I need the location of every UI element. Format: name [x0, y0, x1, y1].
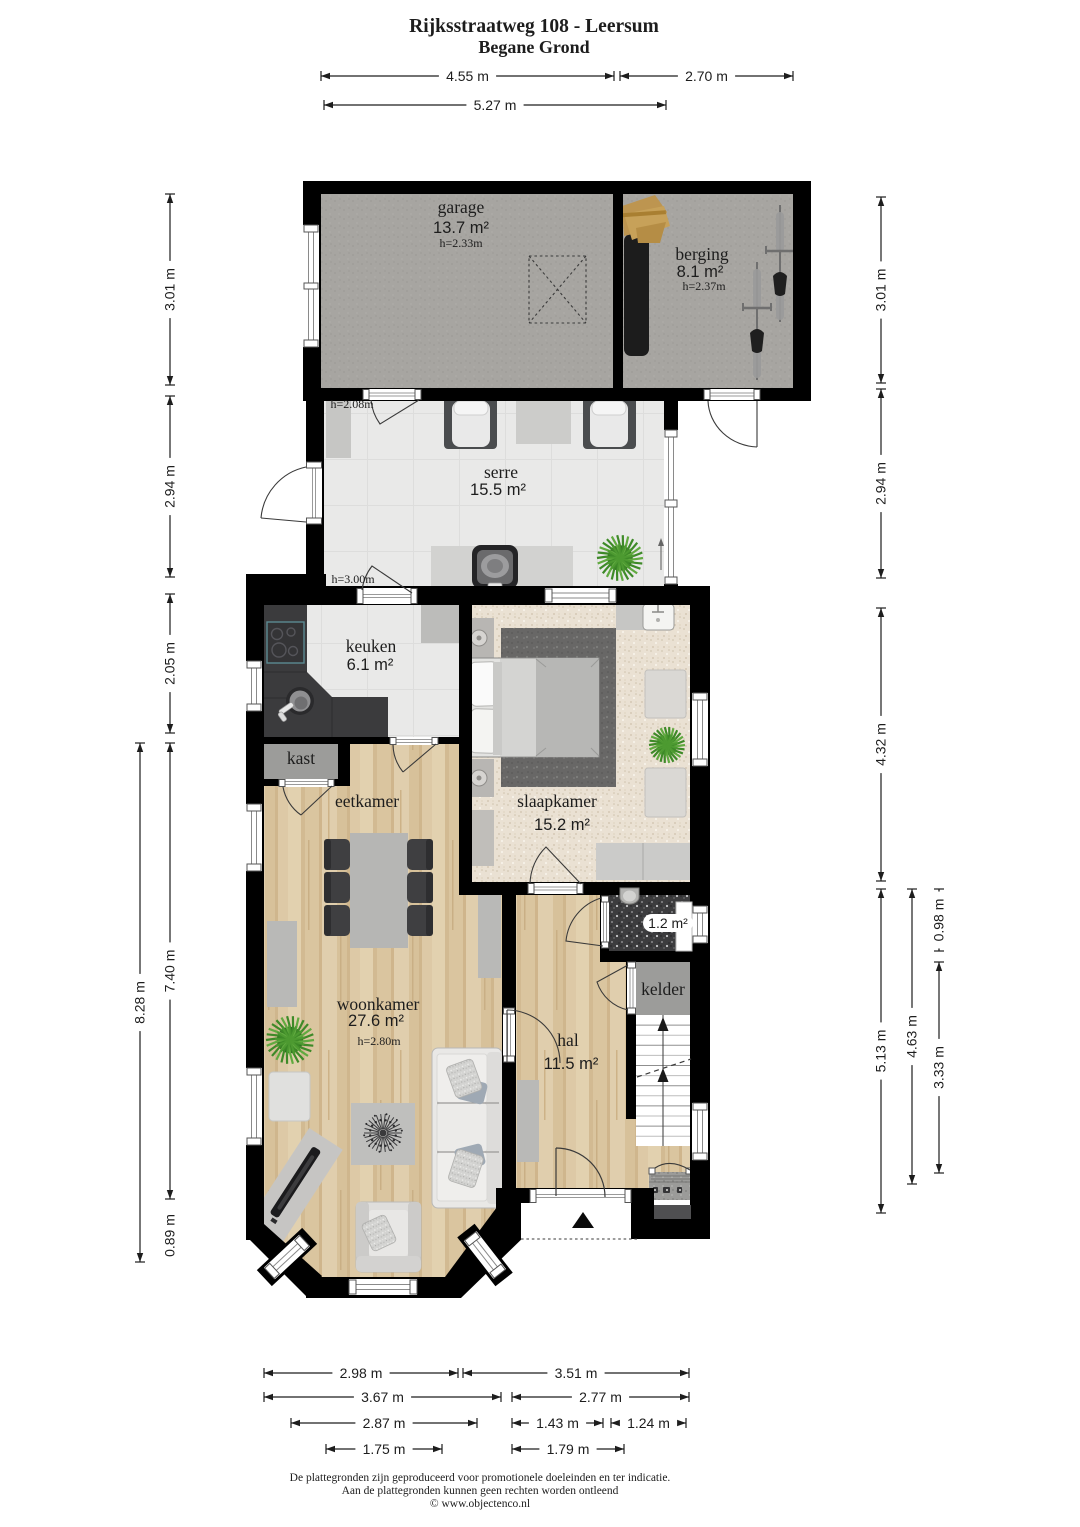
svg-text:Begane Grond: Begane Grond — [478, 37, 589, 57]
svg-text:11.5 m²: 11.5 m² — [544, 1055, 599, 1073]
svg-text:2.05 m: 2.05 m — [162, 642, 178, 685]
svg-text:13.7 m²: 13.7 m² — [433, 219, 489, 237]
svg-text:h=2.80m: h=2.80m — [357, 1034, 401, 1048]
svg-text:5.13 m: 5.13 m — [873, 1030, 889, 1073]
svg-text:2.94 m: 2.94 m — [873, 462, 889, 505]
svg-text:serre: serre — [484, 462, 518, 482]
svg-text:1.43 m: 1.43 m — [536, 1415, 579, 1431]
svg-text:Rijksstraatweg 108 - Leersum: Rijksstraatweg 108 - Leersum — [409, 16, 659, 37]
svg-text:h=2.37m: h=2.37m — [682, 279, 726, 293]
svg-text:eetkamer: eetkamer — [335, 791, 399, 811]
svg-text:15.5 m²: 15.5 m² — [470, 481, 526, 499]
svg-text:© www.objectenco.nl: © www.objectenco.nl — [430, 1498, 530, 1510]
svg-text:keuken: keuken — [346, 636, 397, 656]
svg-text:slaapkamer: slaapkamer — [517, 791, 597, 811]
svg-text:4.32 m: 4.32 m — [873, 723, 889, 766]
svg-text:kelder: kelder — [641, 979, 685, 999]
svg-text:3.33 m: 3.33 m — [931, 1046, 947, 1089]
svg-text:7.40 m: 7.40 m — [162, 950, 178, 993]
svg-text:h=2.08m: h=2.08m — [330, 397, 374, 411]
svg-text:0.89 m: 0.89 m — [162, 1214, 178, 1257]
svg-text:0.98 m: 0.98 m — [931, 899, 947, 942]
svg-text:h=3.00m: h=3.00m — [331, 572, 375, 586]
svg-text:garage: garage — [438, 197, 485, 217]
svg-text:kast: kast — [287, 748, 315, 768]
svg-text:3.67 m: 3.67 m — [361, 1389, 404, 1405]
svg-text:hal: hal — [557, 1030, 579, 1050]
svg-text:5.27 m: 5.27 m — [474, 97, 517, 113]
svg-text:3.51 m: 3.51 m — [555, 1365, 598, 1381]
svg-text:1.2 m²: 1.2 m² — [648, 915, 688, 931]
svg-text:3.01 m: 3.01 m — [162, 268, 178, 311]
svg-text:Aan de plattegronden kunnen ge: Aan de plattegronden kunnen geen rechten… — [342, 1485, 619, 1497]
svg-text:8.28 m: 8.28 m — [132, 981, 148, 1024]
svg-text:h=2.33m: h=2.33m — [439, 236, 483, 250]
svg-text:6.1 m²: 6.1 m² — [347, 656, 394, 674]
svg-text:1.24 m: 1.24 m — [627, 1415, 670, 1431]
svg-text:3.01 m: 3.01 m — [873, 269, 889, 312]
svg-text:De plattegronden zijn geproduc: De plattegronden zijn geproduceerd voor … — [290, 1472, 671, 1484]
svg-text:2.98 m: 2.98 m — [340, 1365, 383, 1381]
svg-text:2.77 m: 2.77 m — [579, 1389, 622, 1405]
svg-text:2.87 m: 2.87 m — [363, 1415, 406, 1431]
svg-text:1.75 m: 1.75 m — [363, 1441, 406, 1457]
svg-text:4.63 m: 4.63 m — [904, 1015, 920, 1058]
svg-text:woonkamer: woonkamer — [337, 994, 420, 1014]
svg-text:15.2 m²: 15.2 m² — [534, 816, 590, 834]
svg-text:27.6 m²: 27.6 m² — [348, 1012, 404, 1030]
svg-text:2.70 m: 2.70 m — [685, 68, 728, 84]
svg-text:berging: berging — [675, 244, 728, 264]
svg-text:1.79 m: 1.79 m — [547, 1441, 590, 1457]
svg-text:4.55 m: 4.55 m — [446, 68, 489, 84]
svg-text:2.94 m: 2.94 m — [162, 465, 178, 508]
